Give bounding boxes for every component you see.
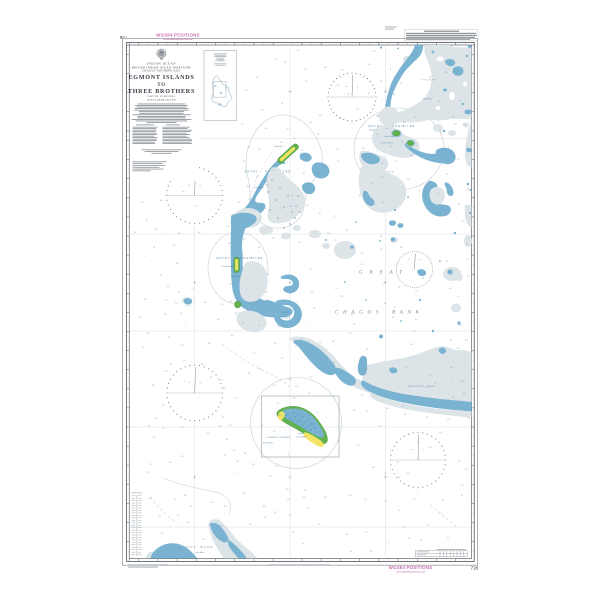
- svg-text:WGS84 POSITIONS: WGS84 POSITIONS: [156, 32, 199, 37]
- svg-text:726: 726: [471, 565, 479, 570]
- svg-text:Trois Frères: Trois Frères: [381, 142, 394, 144]
- svg-text:(see Note): (see Note): [254, 186, 264, 189]
- svg-text:THREE BROTHERS: THREE BROTHERS: [128, 89, 195, 95]
- svg-text:VICTORY: VICTORY: [422, 80, 437, 82]
- svg-text:Sea Cow: Sea Cow: [385, 136, 394, 138]
- svg-text:Île Sud-Est: Île Sud-Est: [263, 442, 273, 445]
- svg-text:BANK: BANK: [424, 98, 433, 101]
- svg-text:CHAGOS BANK: CHAGOS BANK: [335, 310, 424, 316]
- svg-text:726: 726: [119, 35, 127, 40]
- svg-text:SCALE 1:150 000 at lat 6°20'S: SCALE 1:150 000 at lat 6°20'S: [147, 99, 177, 102]
- svg-text:(see Note): (see Note): [296, 436, 306, 439]
- svg-text:Nelsons I: Nelsons I: [274, 146, 284, 148]
- svg-text:DEPTHS IN METRES: DEPTHS IN METRES: [148, 96, 176, 98]
- svg-text:(see Note): (see Note): [196, 551, 205, 554]
- svg-text:Île des Rats: Île des Rats: [222, 265, 233, 268]
- svg-text:ENTRY PROHIBITED: ENTRY PROHIBITED: [245, 170, 292, 174]
- svg-text:PITT BANK: PITT BANK: [184, 545, 213, 549]
- svg-text:WESTERN REEF: WESTERN REEF: [408, 386, 436, 388]
- svg-text:ENTRY: ENTRY: [282, 312, 290, 314]
- svg-text:CHAGOS ARCHIPELAGO: CHAGOS ARCHIPELAGO: [142, 70, 180, 73]
- svg-text:WGS84 POSITIONS: WGS84 POSITIONS: [389, 565, 432, 570]
- svg-text:GREAT: GREAT: [359, 270, 409, 276]
- svg-text:EGMONT ISLANDS: EGMONT ISLANDS: [267, 436, 290, 439]
- svg-text:TO: TO: [157, 83, 165, 88]
- svg-text:(see Note): (see Note): [231, 275, 241, 278]
- svg-text:Lagoon: Lagoon: [298, 433, 306, 435]
- svg-text:INDIAN OCEAN: INDIAN OCEAN: [147, 61, 177, 65]
- svg-text:EGMONT ISLANDS: EGMONT ISLANDS: [128, 75, 194, 81]
- svg-text:ENTRY PROHIBITED: ENTRY PROHIBITED: [217, 256, 264, 260]
- svg-text:can be plotted directly on thi: can be plotted directly on this chart: [396, 570, 426, 573]
